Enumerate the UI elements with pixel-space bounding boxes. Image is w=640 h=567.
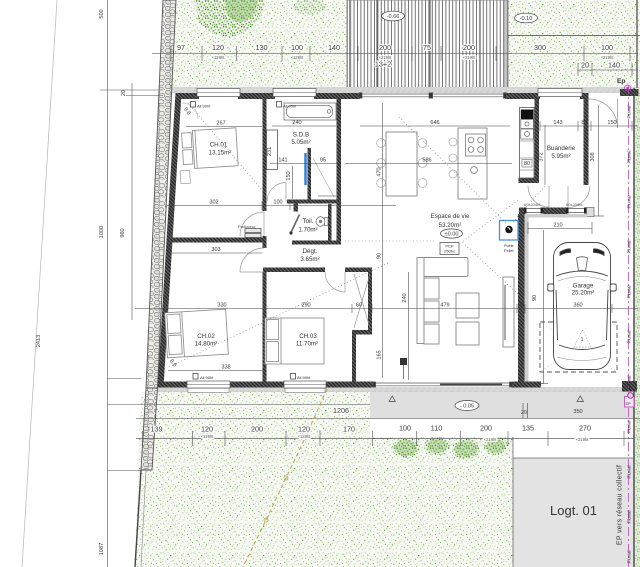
svg-text:3.65m²: 3.65m² xyxy=(300,256,319,263)
svg-text:×219ht: ×219ht xyxy=(463,55,477,60)
svg-text:20: 20 xyxy=(581,61,589,70)
svg-text:303: 303 xyxy=(211,247,220,253)
svg-text:All:90ht: All:90ht xyxy=(200,375,214,380)
svg-text:CH.02: CH.02 xyxy=(197,333,215,340)
svg-text:120: 120 xyxy=(212,43,224,52)
svg-text:Dégt.: Dégt. xyxy=(303,248,318,255)
svg-text:2413: 2413 xyxy=(36,335,42,347)
svg-text:20: 20 xyxy=(121,90,127,96)
svg-text:200: 200 xyxy=(463,43,475,52)
svg-text:20: 20 xyxy=(521,410,527,416)
svg-text:60x204ht: 60x204ht xyxy=(566,202,583,207)
svg-text:141: 141 xyxy=(278,158,287,164)
svg-text:5.95m²: 5.95m² xyxy=(551,153,570,160)
svg-text:290: 290 xyxy=(301,303,310,309)
svg-text:11.70m²: 11.70m² xyxy=(296,341,318,348)
svg-text:×128ht: ×128ht xyxy=(212,55,226,60)
svg-text:S.D.B: S.D.B xyxy=(293,132,309,139)
svg-text:100: 100 xyxy=(601,43,613,52)
svg-text:Ep: Ep xyxy=(617,78,625,85)
svg-text:All:90ht: All:90ht xyxy=(297,375,311,380)
svg-text:200: 200 xyxy=(251,425,263,434)
svg-text:- 0.05: - 0.05 xyxy=(460,404,474,410)
svg-text:338: 338 xyxy=(221,365,230,371)
svg-text:Garage: Garage xyxy=(573,283,594,290)
svg-text:Espace de vie: Espace de vie xyxy=(431,213,470,220)
svg-text:Poêle: Poêle xyxy=(504,244,514,248)
svg-text:479: 479 xyxy=(440,303,449,309)
svg-text:Pluvial: Pluvial xyxy=(627,511,632,524)
svg-text:140: 140 xyxy=(608,61,620,70)
svg-text:EP vers réseau collectif: EP vers réseau collectif xyxy=(617,465,624,545)
svg-text:90: 90 xyxy=(532,295,538,301)
svg-text:Pluvial: Pluvial xyxy=(627,196,632,209)
svg-text:Pluvial: Pluvial xyxy=(627,286,632,299)
svg-text:960: 960 xyxy=(120,228,126,237)
svg-text:140: 140 xyxy=(328,43,340,52)
svg-text:14.80m²: 14.80m² xyxy=(195,341,218,348)
svg-text:150: 150 xyxy=(286,171,292,180)
svg-text:100: 100 xyxy=(399,424,411,433)
svg-text:×219ht: ×219ht xyxy=(576,437,590,442)
svg-text:Pluvial: Pluvial xyxy=(627,376,632,389)
svg-text:110: 110 xyxy=(431,424,442,433)
svg-text:53.20m²: 53.20m² xyxy=(439,222,462,229)
svg-text:Pluvial: Pluvial xyxy=(627,106,632,119)
svg-text:120: 120 xyxy=(298,425,310,434)
svg-text:1000: 1000 xyxy=(99,226,105,238)
svg-text:All:90ht: All:90ht xyxy=(197,104,211,109)
svg-text:90: 90 xyxy=(518,303,524,309)
svg-text:360: 360 xyxy=(573,303,582,309)
svg-text:1206: 1206 xyxy=(333,406,349,415)
svg-text:80: 80 xyxy=(581,120,587,126)
svg-text:25.20m²: 25.20m² xyxy=(572,290,595,297)
svg-text:300: 300 xyxy=(534,43,546,52)
svg-text:500: 500 xyxy=(99,9,105,18)
svg-text:×128ht: ×128ht xyxy=(201,434,215,439)
svg-text:150: 150 xyxy=(607,120,616,126)
svg-text:-0.66: -0.66 xyxy=(387,14,400,20)
svg-text:330: 330 xyxy=(217,303,226,309)
svg-text:13+2: 13+2 xyxy=(375,60,391,69)
svg-text:Pluvial: Pluvial xyxy=(627,421,632,434)
svg-text:250hc: 250hc xyxy=(444,249,455,254)
svg-text:Pellet: Pellet xyxy=(504,249,514,253)
svg-text:470: 470 xyxy=(377,167,383,176)
svg-text:267: 267 xyxy=(216,121,225,127)
svg-text:270: 270 xyxy=(579,424,591,433)
svg-text:136: 136 xyxy=(313,200,322,206)
svg-text:75: 75 xyxy=(423,43,431,52)
svg-text:350: 350 xyxy=(573,409,582,415)
svg-text:Radiateur: Radiateur xyxy=(238,224,256,229)
svg-text:13.15m²: 13.15m² xyxy=(209,150,232,157)
svg-text:80: 80 xyxy=(524,161,530,167)
svg-text:372: 372 xyxy=(539,152,545,161)
svg-text:90: 90 xyxy=(377,253,383,259)
svg-text:100: 100 xyxy=(273,200,282,206)
svg-text:×128ht: ×128ht xyxy=(298,434,312,439)
svg-text:Toil.: Toil. xyxy=(302,218,313,225)
svg-text:Buanderie: Buanderie xyxy=(547,145,576,152)
svg-text:60: 60 xyxy=(356,303,362,309)
svg-text:200: 200 xyxy=(379,43,391,52)
svg-text:308: 308 xyxy=(590,152,596,161)
svg-text:EP: EP xyxy=(626,401,632,406)
svg-text:143: 143 xyxy=(553,120,562,126)
svg-text:240: 240 xyxy=(292,120,301,126)
svg-text:All:90ht: All:90ht xyxy=(283,104,297,109)
svg-text:Pluvial: Pluvial xyxy=(627,151,632,164)
svg-text:200: 200 xyxy=(480,424,492,433)
svg-text:240: 240 xyxy=(402,293,408,302)
svg-text:100: 100 xyxy=(291,43,303,52)
svg-text:302: 302 xyxy=(209,200,218,206)
svg-text:646: 646 xyxy=(430,120,439,126)
svg-text:130: 130 xyxy=(256,43,268,52)
svg-text:Pluvial: Pluvial xyxy=(627,241,632,254)
svg-text:586: 586 xyxy=(422,158,431,164)
svg-text:210: 210 xyxy=(553,223,562,229)
svg-text:135: 135 xyxy=(522,424,534,433)
svg-text:139: 139 xyxy=(151,425,163,434)
svg-text:1.70m²: 1.70m² xyxy=(298,227,317,234)
svg-text:×128ht: ×128ht xyxy=(291,55,305,60)
svg-text:Pluvial: Pluvial xyxy=(627,331,632,344)
svg-text:1: 1 xyxy=(581,337,584,343)
svg-text:165: 165 xyxy=(377,350,383,359)
svg-text:Logt. 01: Logt. 01 xyxy=(550,503,597,518)
svg-text:CH.01: CH.01 xyxy=(210,142,228,149)
svg-text:×219ht: ×219ht xyxy=(484,437,498,442)
svg-text:Pluvial: Pluvial xyxy=(627,551,632,564)
svg-text:Pluvial: Pluvial xyxy=(627,466,632,479)
svg-text:5.05m²: 5.05m² xyxy=(291,139,310,146)
svg-text:×219ht: ×219ht xyxy=(601,55,615,60)
svg-text:-0.10: -0.10 xyxy=(520,16,533,22)
svg-text:CH.03: CH.03 xyxy=(299,333,317,340)
svg-text:120: 120 xyxy=(201,425,213,434)
svg-text:1087: 1087 xyxy=(99,543,105,555)
svg-text:±0.00: ±0.00 xyxy=(445,232,459,238)
svg-text:170: 170 xyxy=(343,425,355,434)
svg-text:97: 97 xyxy=(177,43,185,52)
svg-text:95: 95 xyxy=(320,158,326,164)
svg-text:60x204ht: 60x204ht xyxy=(524,202,541,207)
svg-text:231: 231 xyxy=(267,147,273,156)
